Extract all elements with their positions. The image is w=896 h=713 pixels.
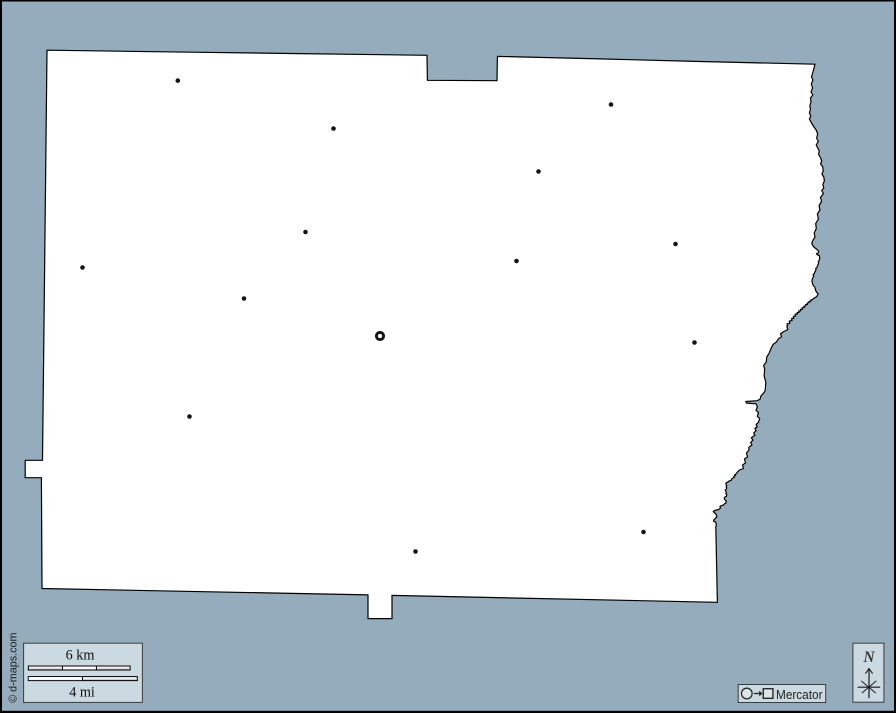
svg-text:Mercator: Mercator bbox=[776, 687, 823, 702]
svg-text:4 mi: 4 mi bbox=[69, 684, 95, 700]
svg-text:6 km: 6 km bbox=[66, 648, 95, 664]
svg-text:N: N bbox=[862, 649, 875, 666]
svg-text:© d-maps.com: © d-maps.com bbox=[8, 632, 20, 702]
